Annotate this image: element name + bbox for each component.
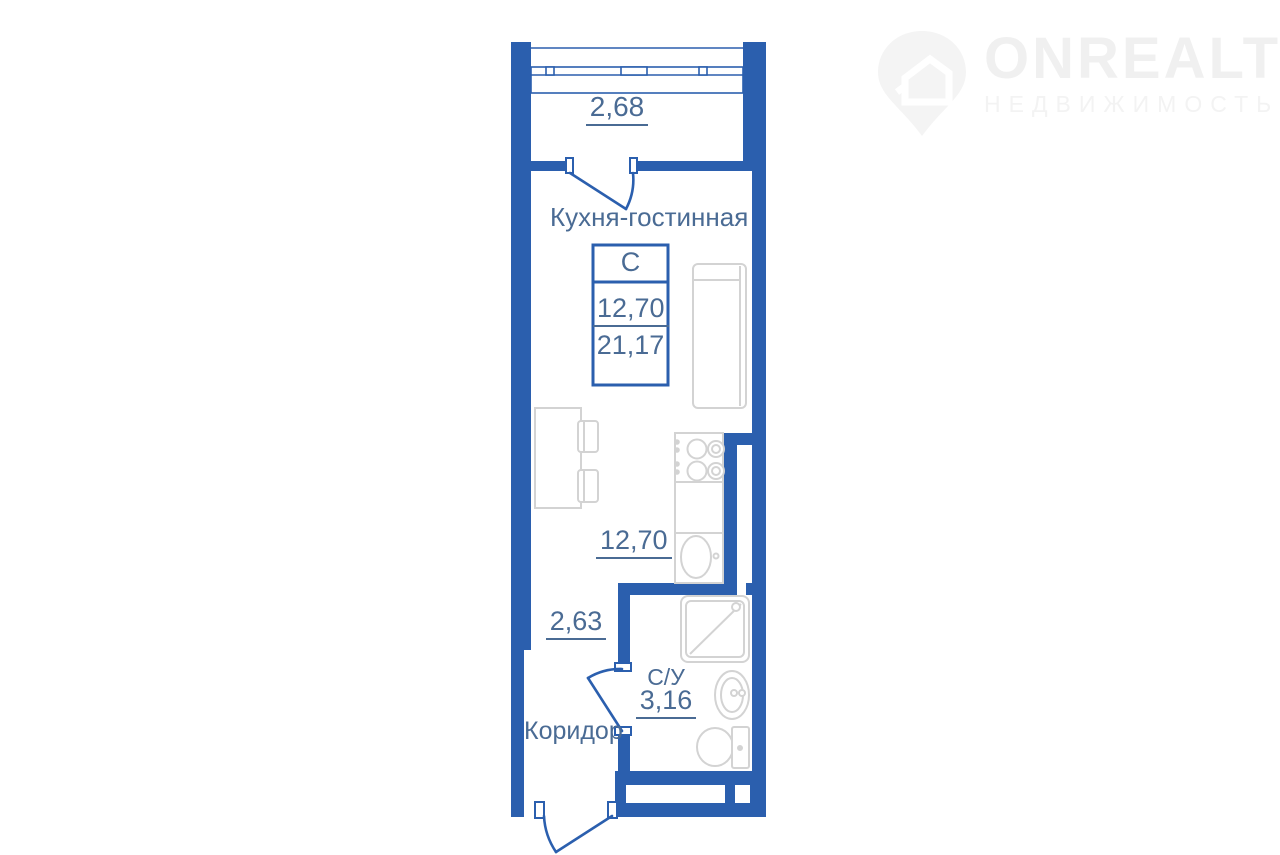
- wall-right: [752, 162, 766, 771]
- chair: [578, 421, 598, 452]
- tap-dot: [731, 690, 737, 696]
- burner-inner: [712, 445, 720, 453]
- wall-balcony-right-stub: [743, 42, 766, 162]
- brand-subtitle: НЕДВИЖИМОСТЬ: [984, 93, 1280, 116]
- tap-dot: [739, 690, 745, 696]
- stove-knob: [675, 448, 679, 452]
- brand-text: ONREALT: [984, 30, 1280, 88]
- toilet-bowl: [697, 728, 733, 766]
- burner: [688, 440, 707, 459]
- bottom-wall-niche-right: [735, 785, 750, 803]
- stove-knob: [675, 462, 679, 466]
- bathroom-sink: [715, 671, 749, 719]
- pin-shape: [878, 31, 966, 136]
- burner-inner: [712, 467, 720, 475]
- stove-knob: [675, 440, 679, 444]
- glazing-mullion: [621, 67, 647, 75]
- corridor-title-label: Коридор: [524, 718, 622, 744]
- toilet: [697, 727, 749, 768]
- stove: [675, 433, 724, 482]
- entrance-door-leaf: [556, 816, 612, 852]
- burner: [688, 462, 707, 481]
- bottom-wall-niche-left: [626, 785, 725, 803]
- wall-balcony-separator-left: [531, 161, 566, 171]
- chair: [578, 470, 598, 502]
- wall-bathroom-top: [618, 583, 737, 595]
- bathroom-door-arc: [588, 669, 622, 678]
- wall-kitchen-duct-cap: [737, 433, 752, 445]
- entrance-door-arc: [544, 816, 556, 852]
- room-area-label: 12,70: [596, 526, 666, 559]
- table-outline: [535, 408, 581, 508]
- info-box-living-area: 12,70: [593, 294, 668, 327]
- floorplan-drawing: [0, 0, 1280, 855]
- bed: [693, 264, 746, 408]
- room-title-label: Кухня-гостинная: [550, 204, 748, 231]
- glazing-mullion: [546, 67, 554, 75]
- bed-outline: [693, 264, 746, 408]
- bathroom-area-label: 3,16: [634, 686, 698, 719]
- wall-balcony-separator-right: [637, 161, 752, 171]
- onrealt-wordmark: ONREALT НЕДВИЖИМОСТЬ: [984, 30, 1280, 116]
- shower-drain: [732, 603, 740, 611]
- onrealt-pin-icon: [872, 28, 972, 140]
- corridor-area-label: 2,63: [543, 607, 609, 640]
- entrance-door-jamb-left: [535, 802, 544, 818]
- wall-bathroom-top-right: [746, 583, 752, 595]
- dining-table: [535, 408, 598, 508]
- wall-bathroom-left-upper: [618, 595, 630, 663]
- balcony-door-jamb-right: [630, 158, 637, 173]
- floorplan-canvas: 2,68 Кухня-гостинная С 12,70 21,17 12,70…: [0, 0, 1280, 855]
- balcony-window: [531, 48, 743, 93]
- balcony-door-jamb-left: [566, 158, 573, 173]
- wall-left-upper: [511, 42, 531, 650]
- balcony-area-label: 2,68: [585, 92, 649, 126]
- kitchen-faucet-dot: [714, 554, 719, 559]
- info-box-total-area: 21,17: [593, 331, 668, 359]
- shower: [681, 596, 749, 662]
- glazing-mullion: [699, 67, 707, 75]
- stove-knob: [675, 470, 679, 474]
- kitchen-sink: [681, 536, 711, 578]
- kitchen-counter: [675, 482, 723, 583]
- onrealt-logo: ONREALT НЕДВИЖИМОСТЬ: [872, 28, 1262, 128]
- wall-left-lower: [511, 650, 524, 817]
- wall-kitchen-duct-left: [723, 433, 737, 583]
- info-box-type: С: [593, 248, 668, 276]
- toilet-button: [738, 746, 742, 750]
